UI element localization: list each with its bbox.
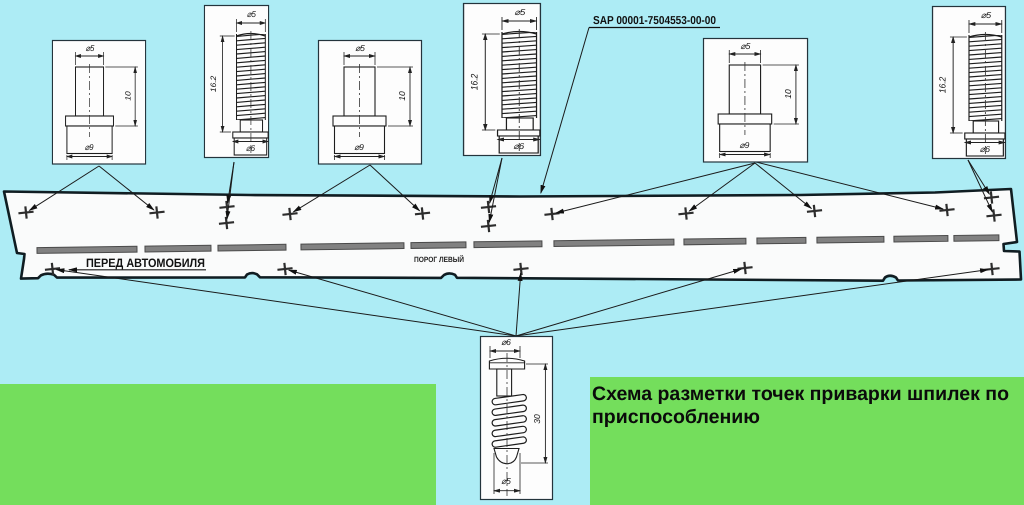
svg-text:30: 30 [532,414,542,424]
svg-text:⌀5: ⌀5 [981,10,992,20]
svg-text:приспособлению: приспособлению [592,406,760,428]
svg-text:⌀5: ⌀5 [501,476,511,486]
svg-text:SAP 00001-7504553-00-00: SAP 00001-7504553-00-00 [593,15,716,27]
svg-text:10: 10 [783,89,793,99]
svg-text:⌀6: ⌀6 [501,337,511,347]
svg-text:⌀9: ⌀9 [85,142,94,152]
svg-text:⌀5: ⌀5 [247,9,256,19]
svg-text:10: 10 [397,91,407,101]
svg-text:⌀5: ⌀5 [740,41,750,51]
svg-text:⌀6: ⌀6 [513,141,524,151]
svg-text:⌀9: ⌀9 [739,140,749,150]
svg-text:⌀9: ⌀9 [354,142,364,152]
svg-text:16.2: 16.2 [469,73,480,90]
svg-text:⌀5: ⌀5 [355,43,365,53]
svg-text:⌀6: ⌀6 [980,144,991,154]
svg-text:⌀6: ⌀6 [246,143,255,153]
svg-text:⌀5: ⌀5 [86,43,95,53]
svg-text:16.2: 16.2 [937,76,948,93]
svg-text:ПОРОГ ЛЕВЫЙ: ПОРОГ ЛЕВЫЙ [414,255,464,264]
svg-text:ПЕРЕД АВТОМОБИЛЯ: ПЕРЕД АВТОМОБИЛЯ [86,256,205,270]
svg-text:Схема разметки точек приварки: Схема разметки точек приварки шпилек по [592,383,1009,405]
svg-text:10: 10 [123,91,132,101]
svg-text:16.2: 16.2 [209,75,218,92]
svg-text:⌀5: ⌀5 [514,7,525,17]
